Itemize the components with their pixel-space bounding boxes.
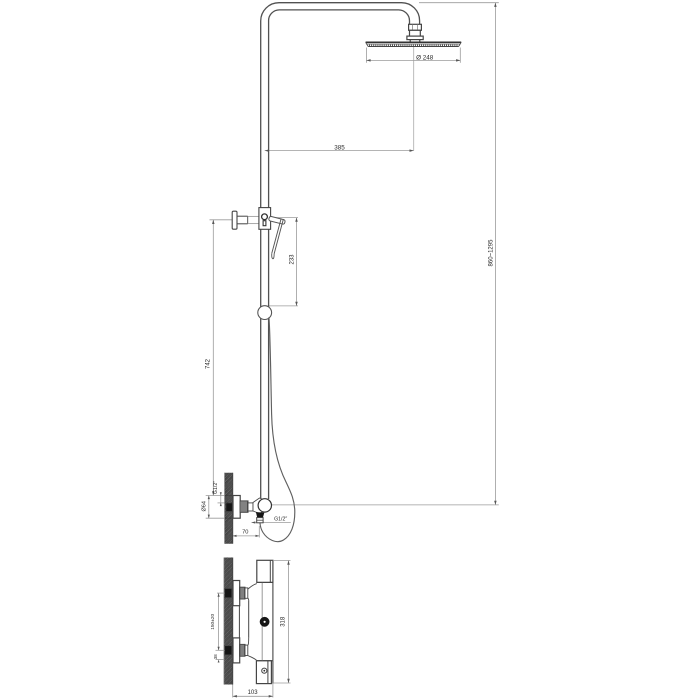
svg-text:742: 742: [206, 358, 212, 369]
svg-text:G1/2″: G1/2″: [274, 516, 287, 522]
svg-text:Ø64: Ø64: [201, 501, 207, 511]
svg-text:860~1295: 860~1295: [488, 239, 494, 267]
svg-text:38: 38: [213, 654, 218, 659]
svg-text:G1/2″: G1/2″: [213, 481, 219, 494]
svg-text:385: 385: [334, 145, 345, 152]
svg-text:70: 70: [242, 529, 248, 535]
svg-text:233: 233: [289, 254, 295, 265]
svg-text:Ø 248: Ø 248: [416, 54, 434, 61]
svg-text:150±20: 150±20: [210, 613, 216, 629]
svg-text:318: 318: [281, 616, 287, 627]
svg-text:103: 103: [248, 690, 259, 696]
